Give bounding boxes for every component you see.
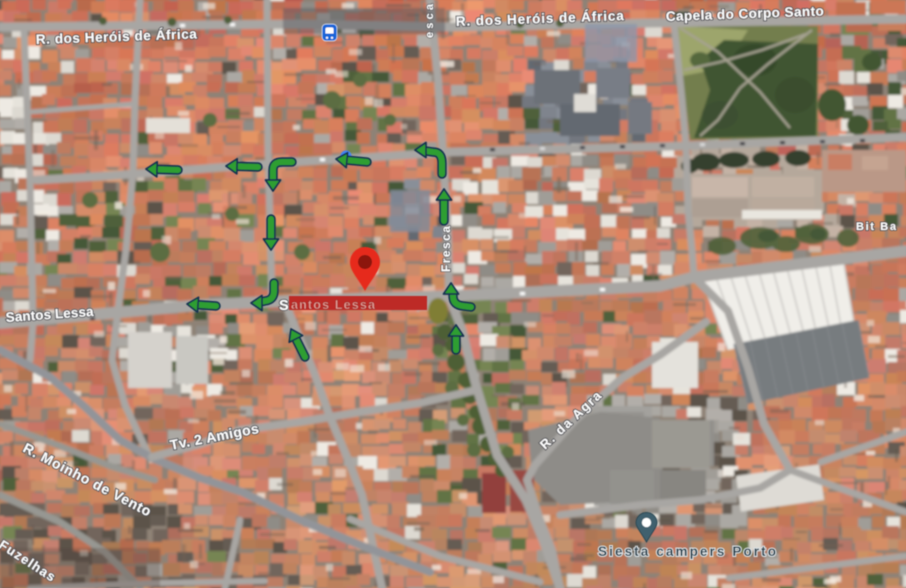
svg-text:Siesta campers Porto: Siesta campers Porto (598, 544, 776, 559)
svg-text:Bit Ba: Bit Ba (856, 221, 897, 233)
svg-text:S: S (279, 298, 289, 314)
svg-text:antos Lessa: antos Lessa (291, 298, 376, 312)
svg-text:Fresca: Fresca (439, 226, 453, 272)
